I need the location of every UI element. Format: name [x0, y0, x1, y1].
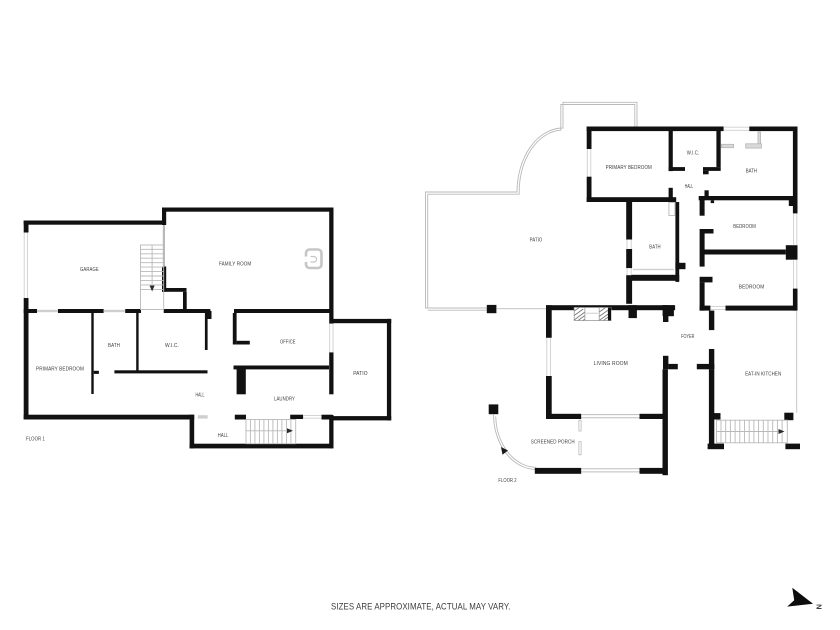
- svg-text:PATIO: PATIO: [530, 238, 543, 244]
- svg-text:OFFICE: OFFICE: [280, 339, 296, 345]
- svg-text:BATH: BATH: [649, 244, 661, 250]
- svg-text:FLOOR 1: FLOOR 1: [26, 436, 45, 442]
- svg-text:LAUNDRY: LAUNDRY: [274, 397, 295, 403]
- svg-text:BATH: BATH: [746, 169, 758, 175]
- svg-text:HALL: HALL: [685, 184, 694, 190]
- svg-text:HALL: HALL: [196, 392, 205, 398]
- svg-text:GARAGE: GARAGE: [80, 267, 99, 273]
- svg-text:LIVING ROOM: LIVING ROOM: [594, 361, 628, 367]
- svg-text:BEDROOM: BEDROOM: [733, 224, 756, 230]
- svg-text:SCREENED PORCH: SCREENED PORCH: [531, 439, 575, 445]
- svg-text:FAMILY ROOM: FAMILY ROOM: [219, 262, 251, 268]
- svg-text:N: N: [815, 604, 824, 610]
- svg-text:W.I.C.: W.I.C.: [165, 343, 179, 349]
- svg-text:FLOOR 2: FLOOR 2: [498, 478, 516, 484]
- svg-text:HALL: HALL: [218, 433, 229, 439]
- svg-text:FOYER: FOYER: [681, 334, 695, 340]
- svg-text:W.I.C.: W.I.C.: [687, 150, 700, 156]
- svg-text:BATH: BATH: [108, 343, 120, 349]
- svg-text:EAT-IN KITCHEN: EAT-IN KITCHEN: [745, 372, 781, 378]
- svg-text:BEDROOM: BEDROOM: [739, 284, 765, 290]
- svg-text:SIZES ARE APPROXIMATE, ACTUAL: SIZES ARE APPROXIMATE, ACTUAL MAY VARY.: [331, 602, 511, 612]
- svg-text:PRIMARY BEDROOM: PRIMARY BEDROOM: [606, 165, 652, 171]
- svg-text:PRIMARY BEDROOM: PRIMARY BEDROOM: [36, 366, 84, 372]
- svg-text:PATIO: PATIO: [353, 371, 367, 377]
